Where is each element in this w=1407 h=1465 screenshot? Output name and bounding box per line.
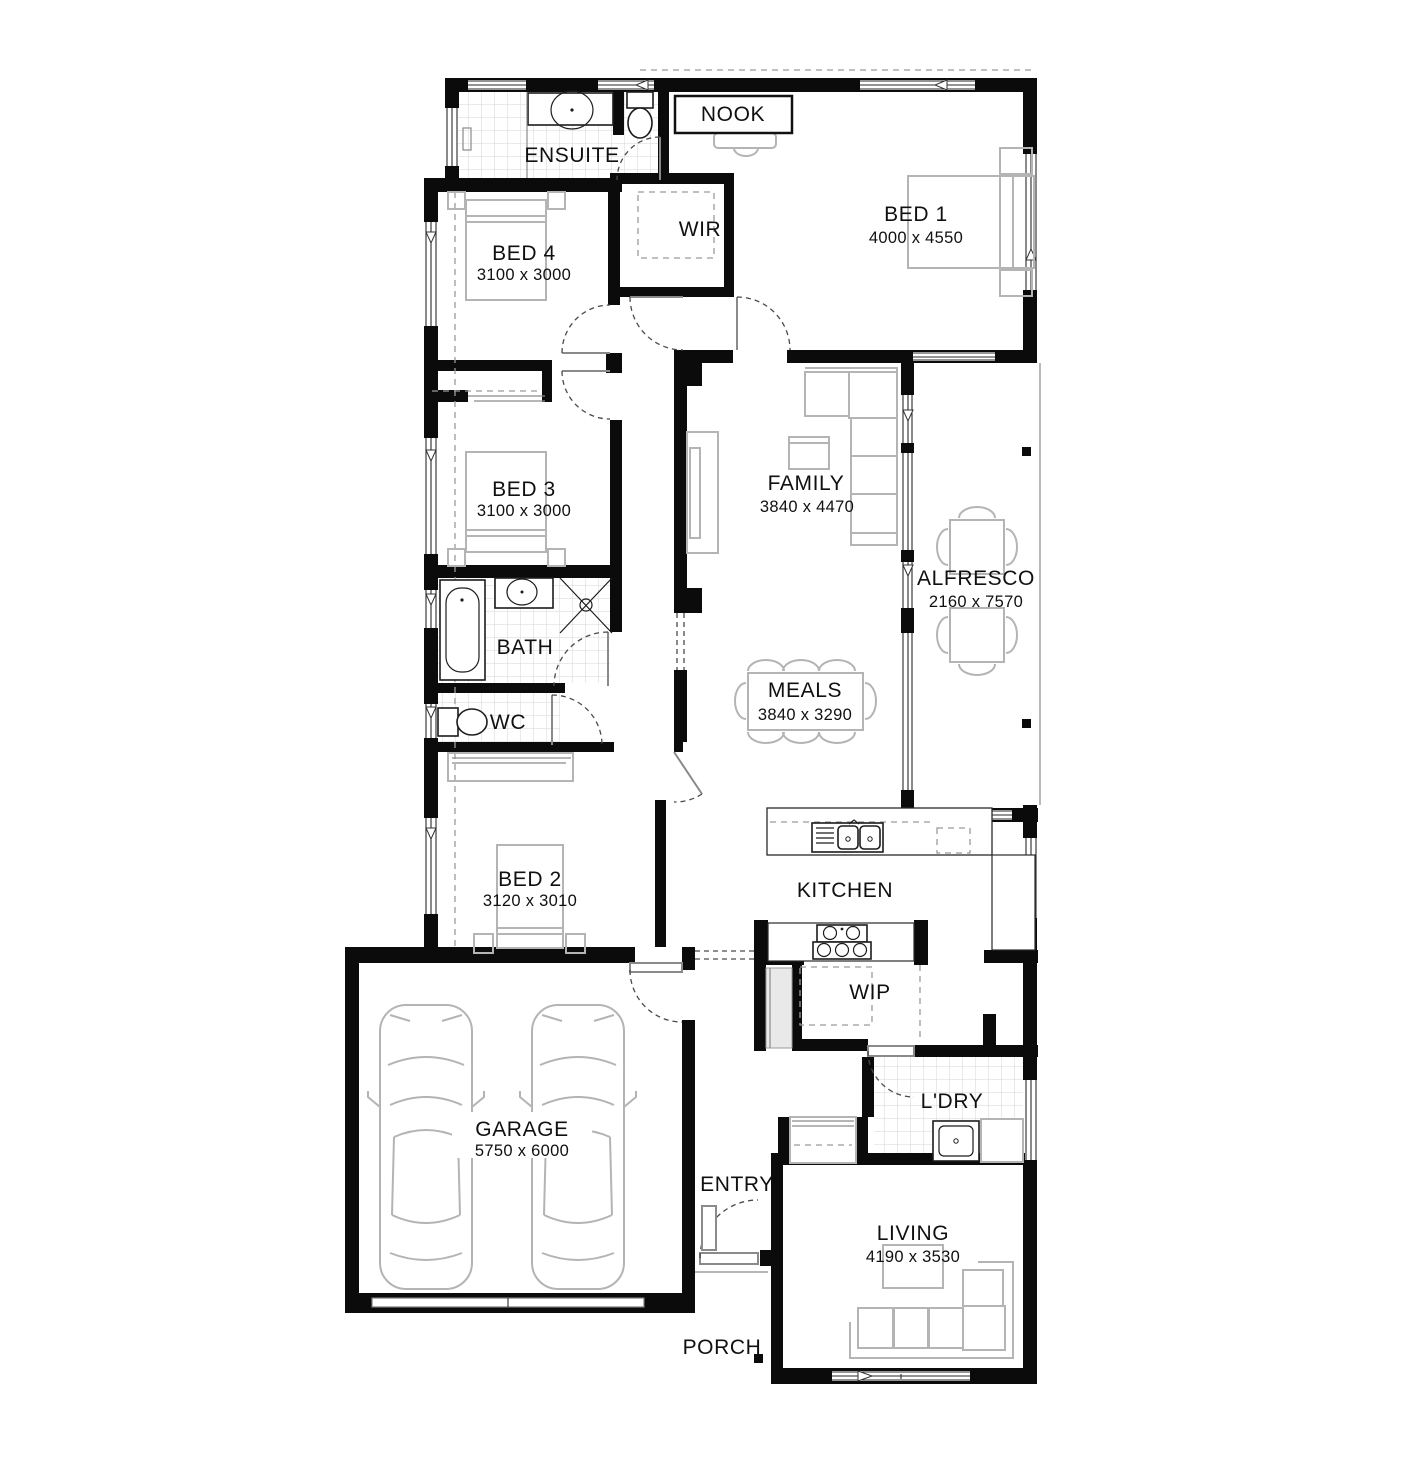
window-bed4: [425, 222, 437, 326]
door-garage-internal: [630, 963, 682, 1022]
window-ensuite-top: [468, 80, 526, 90]
room-dims-meals: 3840 x 3290: [758, 706, 852, 724]
room-label-garage: GARAGE: [475, 1118, 568, 1141]
room-label-wir: WIR: [679, 218, 722, 241]
wc-toilet: [438, 708, 487, 736]
bulkhead-entry: [695, 951, 754, 959]
family-sofa: [789, 368, 897, 545]
room-label-bed4: BED 4: [492, 242, 556, 265]
window-wc: [425, 704, 437, 738]
door-bed1: [737, 297, 790, 350]
window-nook-top: [598, 80, 654, 90]
window-family-alfresco: [903, 395, 913, 790]
entry-cupboard: [790, 1117, 856, 1163]
room-label-bath: BATH: [497, 636, 554, 659]
nook-desk: [714, 133, 776, 156]
kitchen-bench-east: [992, 855, 1035, 950]
room-label-nook: NOOK: [701, 103, 765, 126]
room-label-alfresco: ALFRESCO: [917, 567, 1035, 590]
room-dims-garage: 5750 x 6000: [475, 1142, 569, 1160]
room-label-ensuite: ENSUITE: [524, 144, 619, 167]
room-label-family: FAMILY: [768, 472, 845, 495]
room-label-bed3: BED 3: [492, 478, 556, 501]
window-bed2: [425, 818, 437, 914]
room-label-bed1: BED 1: [884, 203, 948, 226]
room-label-entry: ENTRY: [700, 1173, 774, 1196]
room-label-living: LIVING: [877, 1222, 949, 1245]
cooktop-icon: [813, 925, 871, 959]
door-bed3: [562, 371, 610, 419]
cavity-slider-family: [677, 613, 684, 670]
room-label-wc: WC: [490, 711, 526, 734]
kitchen-cooktop-bench: [768, 923, 914, 961]
window-bed1-top: [860, 80, 975, 90]
floor-plan-canvas: NOOK ENSUITE BED 4 3100 x 3000 WIR BED 1…: [0, 0, 1407, 1465]
alfresco-setting: [937, 507, 1017, 675]
room-label-porch: PORCH: [683, 1336, 762, 1359]
window-alfresco-top: [913, 352, 995, 361]
room-label-ldry: L'DRY: [921, 1090, 984, 1113]
room-dims-bed2: 3120 x 3010: [483, 892, 577, 910]
door-front: [695, 1200, 768, 1272]
room-dims-bed3: 3100 x 3000: [477, 502, 571, 520]
window-bath: [425, 590, 437, 628]
garage-door: [372, 1298, 644, 1307]
room-dims-bed1: 4000 x 4550: [869, 229, 963, 247]
window-ensuite-left: [446, 108, 458, 166]
window-bed3: [425, 438, 437, 554]
door-bed2: [674, 752, 702, 802]
kitchen-sink-icon: [812, 820, 883, 852]
room-dims-bed4: 3100 x 3000: [477, 266, 571, 284]
laundry-fixtures: [933, 1119, 1023, 1162]
door-hall: [630, 297, 683, 350]
room-label-bed2: BED 2: [498, 868, 562, 891]
room-dims-alfresco: 2160 x 7570: [929, 593, 1023, 611]
room-dims-family: 3840 x 4470: [760, 498, 854, 516]
room-label-kitchen: KITCHEN: [797, 879, 893, 902]
room-label-meals: MEALS: [768, 679, 842, 702]
room-label-wip: WIP: [849, 981, 890, 1004]
door-bed4: [562, 305, 610, 353]
bed2-bed: [448, 753, 585, 953]
family-tv-unit: [687, 432, 718, 553]
furniture: [368, 91, 1035, 1358]
window-living: [832, 1371, 970, 1381]
window-ldry-east: [1025, 1080, 1037, 1160]
room-dims-living: 4190 x 3530: [866, 1248, 960, 1266]
